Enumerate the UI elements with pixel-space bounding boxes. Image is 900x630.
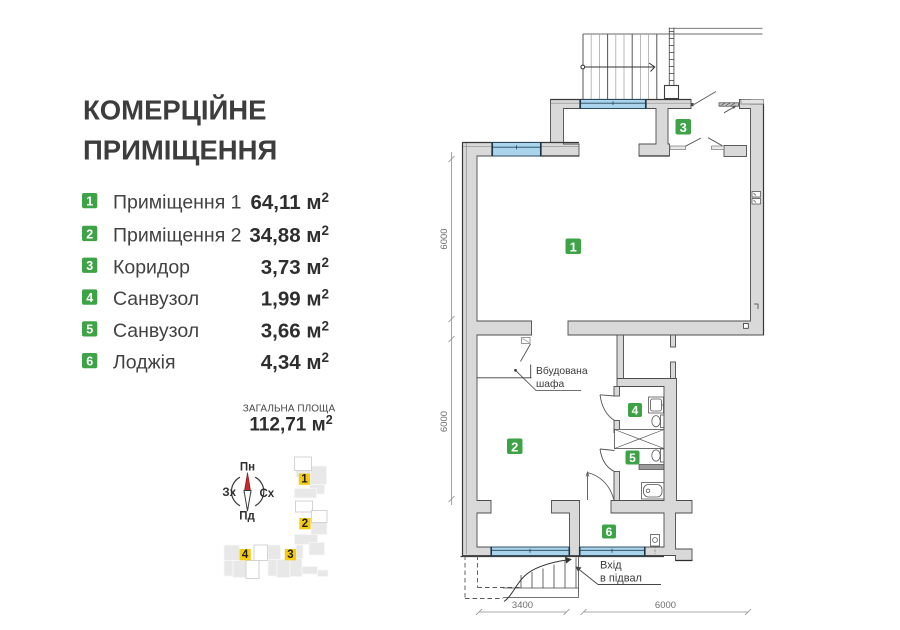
- svg-text:ЗАГАЛЬНА ПЛОЩА: ЗАГАЛЬНА ПЛОЩА: [243, 404, 336, 415]
- svg-text:ПРИМІЩЕННЯ: ПРИМІЩЕННЯ: [83, 135, 277, 166]
- svg-text:1: 1: [301, 474, 308, 486]
- svg-text:3: 3: [86, 259, 93, 273]
- svg-text:6000: 6000: [439, 228, 450, 249]
- svg-text:Приміщення 2: Приміщення 2: [113, 225, 242, 247]
- svg-text:2: 2: [86, 227, 93, 241]
- svg-text:2: 2: [511, 439, 518, 454]
- svg-text:Пн: Пн: [240, 462, 255, 474]
- svg-text:34,88 м2: 34,88 м2: [249, 223, 329, 247]
- svg-text:6: 6: [86, 355, 93, 369]
- svg-text:6000: 6000: [655, 600, 676, 611]
- svg-text:1,99 м2: 1,99 м2: [261, 287, 329, 311]
- svg-text:3: 3: [287, 549, 293, 561]
- svg-text:Санвузол: Санвузол: [113, 288, 199, 310]
- svg-text:Вбудована: Вбудована: [536, 365, 588, 377]
- svg-text:Лоджія: Лоджія: [113, 352, 176, 374]
- svg-text:Вхід: Вхід: [600, 560, 622, 572]
- svg-text:1: 1: [86, 195, 93, 209]
- svg-text:5: 5: [86, 323, 93, 337]
- svg-text:2: 2: [302, 518, 308, 530]
- svg-text:3,66 м2: 3,66 м2: [261, 318, 329, 342]
- svg-text:4,34 м2: 4,34 м2: [261, 350, 329, 374]
- svg-text:1: 1: [570, 239, 577, 254]
- svg-text:3: 3: [680, 120, 687, 135]
- svg-text:в підвал: в підвал: [600, 573, 642, 585]
- svg-text:6: 6: [606, 525, 613, 539]
- svg-text:4: 4: [632, 404, 639, 418]
- svg-text:Сх: Сх: [260, 488, 275, 500]
- svg-text:шафа: шафа: [536, 378, 564, 390]
- svg-text:Зх: Зх: [222, 487, 236, 499]
- svg-text:4: 4: [86, 291, 93, 305]
- svg-text:112,71 м2: 112,71 м2: [249, 413, 332, 436]
- svg-text:КОМЕРЦІЙНЕ: КОМЕРЦІЙНЕ: [83, 95, 266, 126]
- svg-text:6000: 6000: [439, 411, 450, 432]
- svg-text:64,11 м2: 64,11 м2: [250, 190, 329, 214]
- svg-text:Пд: Пд: [239, 511, 255, 523]
- svg-text:4: 4: [242, 549, 249, 561]
- svg-text:Коридор: Коридор: [113, 256, 190, 278]
- svg-text:3400: 3400: [512, 600, 533, 611]
- svg-text:3,73 м2: 3,73 м2: [261, 255, 329, 279]
- svg-text:5: 5: [629, 451, 636, 465]
- svg-text:Приміщення 1: Приміщення 1: [113, 192, 242, 214]
- svg-text:Санвузол: Санвузол: [113, 320, 199, 342]
